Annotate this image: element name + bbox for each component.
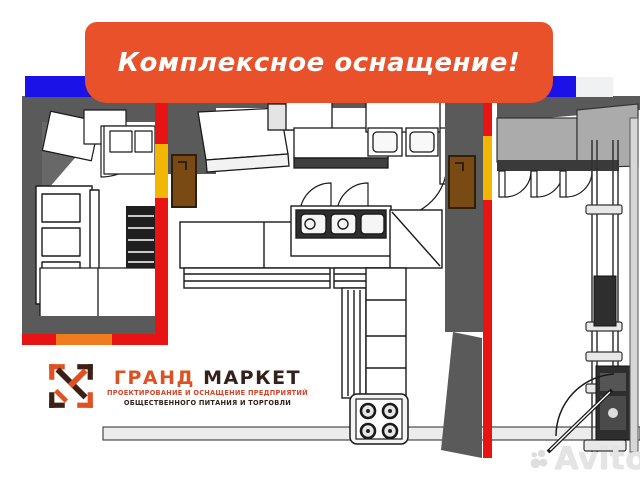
wall-equipment-row (198, 98, 480, 184)
promo-banner: Комплексное оснащение! (85, 22, 553, 103)
banner-text: Комплексное оснащение! (118, 48, 520, 78)
logo-subtitle: ПРОЕКТИРОВАНИЕ И ОСНАЩЕНИЕ ПРЕДПРИЯТИЙ О… (107, 389, 308, 409)
dark-rack (126, 206, 156, 270)
cabinet-doors (499, 171, 592, 197)
promo-image: Комплексное оснащение! ГРАНД МАРКЕТ (0, 0, 640, 479)
logo-subtitle-line1: ПРОЕКТИРОВАНИЕ И ОСНАЩЕНИЕ ПРЕДПРИЯТИЙ (107, 389, 308, 399)
grand-market-monogram-icon (45, 360, 97, 412)
top-right-light-block (576, 77, 613, 97)
right-dividing-wall (441, 96, 492, 458)
grand-market-logo: ГРАНД МАРКЕТ ПРОЕКТИРОВАНИЕ И ОСНАЩЕНИЕ … (45, 360, 308, 412)
avito-wordmark: Avito (555, 441, 640, 477)
logo-title-rest: МАРКЕТ (203, 367, 301, 389)
logo-title: ГРАНД МАРКЕТ (114, 368, 301, 389)
avito-watermark: Avito (527, 438, 640, 479)
left-room (22, 96, 168, 345)
stove (350, 394, 408, 444)
logo-subtitle-line2: ОБЩЕСТВЕННОГО ПИТАНИЯ И ТОРГОВЛИ (107, 399, 308, 409)
avito-circles-logo (527, 441, 548, 477)
logo-title-accent: ГРАНД (114, 367, 195, 389)
right-room (497, 96, 640, 452)
